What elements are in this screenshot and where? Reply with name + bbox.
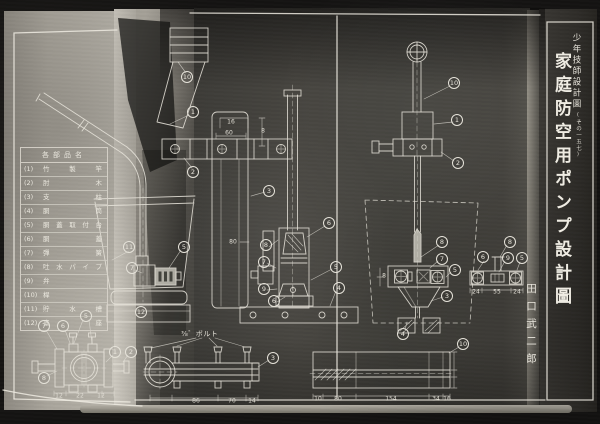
- callout-badge: 6: [57, 320, 69, 332]
- leader-lines: [46, 62, 520, 376]
- callout-badge: 5: [516, 252, 528, 264]
- part-number: (1): [21, 163, 41, 176]
- parts-table-row: (10)桿: [21, 288, 107, 302]
- dimension-label: 12: [55, 393, 63, 400]
- callout-badge: 4: [397, 328, 409, 340]
- parts-table-body: (1)竹製竿(2)肘木(3)支柱(4)胴筒(5)胴蓋取付台(6)胴蓋(7)彈簧(…: [21, 163, 107, 330]
- callout-badge: 8: [38, 372, 50, 384]
- callout-badge: 5: [449, 264, 461, 276]
- callout-badge: 10: [181, 71, 193, 83]
- rod-detail-view: [310, 352, 457, 399]
- dimension-label: 8: [261, 128, 265, 135]
- callout-badge: 6: [268, 295, 280, 307]
- part-name: 貯水槽: [43, 303, 102, 316]
- side-elevation-view: [365, 42, 478, 333]
- callout-badge: 9: [502, 252, 514, 264]
- part-name: 胴筒: [43, 205, 102, 218]
- part-name: 桿: [43, 289, 102, 302]
- part-name: 胴蓋取付台: [43, 219, 102, 232]
- callout-badge: 1: [187, 106, 199, 118]
- callout-badge: 4: [333, 282, 345, 294]
- callout-badge: 2: [187, 166, 199, 178]
- parts-table-header: 各部品名: [21, 148, 107, 163]
- series-number-note: (その一五七): [574, 112, 582, 159]
- part-number: (3): [21, 191, 41, 204]
- dimension-label: 16: [227, 119, 235, 126]
- callout-badge: 6: [323, 217, 335, 229]
- callout-badge: 1: [451, 114, 463, 126]
- parts-table-row: (2)肘木: [21, 176, 107, 190]
- dimension-label: 24: [472, 289, 480, 296]
- page-title: 家庭防空用ポンプ設計圖: [549, 52, 574, 311]
- part-number: (9): [21, 275, 41, 288]
- dimension-label: 70: [228, 398, 236, 405]
- part-number: (4): [21, 205, 41, 218]
- parts-table-row: (11)貯水槽: [21, 302, 107, 316]
- callout-badge: 8: [436, 236, 448, 248]
- parts-table-row: (7)彈簧: [21, 246, 107, 260]
- part-name: 吐水パイプ: [43, 261, 102, 274]
- dimension-label: 22: [76, 393, 84, 400]
- callout-badge: 6: [477, 251, 489, 263]
- callout-badge: 2: [125, 346, 137, 358]
- author-name: 田口武二郎: [524, 283, 539, 371]
- dimension-label: 10: [314, 396, 322, 403]
- callout-badge: 7: [126, 262, 138, 274]
- parts-table-row: (9)弁: [21, 274, 107, 288]
- bolt-size-note: ⅜゛ボルト: [181, 329, 218, 339]
- part-name: 彈簧: [43, 247, 102, 260]
- part-number: (11): [21, 303, 41, 316]
- part-name: 肘木: [43, 177, 102, 190]
- parts-table-row: (8)吐水パイプ: [21, 260, 107, 274]
- dimension-label: 12: [97, 393, 105, 400]
- callout-badge: 3: [267, 352, 279, 364]
- parts-table-row: (1)竹製竿: [21, 163, 107, 176]
- callout-badge: 8: [504, 236, 516, 248]
- dimension-label: 8: [382, 273, 386, 280]
- parts-table-row: (4)胴筒: [21, 204, 107, 218]
- callout-badge: 8: [260, 239, 272, 251]
- dimension-label: 60: [225, 130, 233, 137]
- callout-badge: 5: [178, 241, 190, 253]
- part-name: 竹製竿: [43, 163, 102, 176]
- part-number: (7): [21, 247, 41, 260]
- part-name: 弁: [43, 275, 102, 288]
- callout-badge: 1: [109, 346, 121, 358]
- dimension-label: 55: [493, 289, 501, 296]
- parts-table-row: (3)支柱: [21, 190, 107, 204]
- clamp-plan-detail-view: [32, 333, 129, 396]
- callout-badge: 7: [436, 253, 448, 265]
- part-name: 支柱: [43, 191, 102, 204]
- callout-badge: 3: [441, 290, 453, 302]
- dimension-label: 14: [248, 398, 256, 405]
- callout-badge: 3: [263, 185, 275, 197]
- callout-badge: 5: [330, 261, 342, 273]
- dimension-label: 154: [385, 396, 396, 403]
- callout-badge: 10: [457, 338, 469, 350]
- parts-table: 各部品名 (1)竹製竿(2)肘木(3)支柱(4)胴筒(5)胴蓋取付台(6)胴蓋(…: [20, 147, 108, 331]
- part-name: 臺座: [43, 317, 102, 330]
- handlebar-detail-view: [143, 347, 259, 401]
- dimension-label: 34: [432, 396, 440, 403]
- dimension-label: 86: [192, 398, 200, 405]
- part-name: 胴蓋: [43, 233, 102, 246]
- parts-table-row: (6)胴蓋: [21, 232, 107, 246]
- callout-badge: 2: [452, 157, 464, 169]
- dimension-label: 80: [334, 396, 342, 403]
- part-number: (2): [21, 177, 41, 190]
- callout-badge: 11: [123, 241, 135, 253]
- callout-badge: 12: [135, 306, 147, 318]
- part-number: (8): [21, 261, 41, 274]
- callout-badge: 10: [448, 77, 460, 89]
- dimension-label: 16: [443, 396, 451, 403]
- callout-badge: 5: [80, 310, 92, 322]
- scanned-pump-blueprint-page: 各部品名 (1)竹製竿(2)肘木(3)支柱(4)胴筒(5)胴蓋取付台(6)胴蓋(…: [0, 0, 600, 424]
- callout-badge: 9: [258, 283, 270, 295]
- part-number: (5): [21, 219, 41, 232]
- part-number: (10): [21, 289, 41, 302]
- dimension-label: 24: [513, 289, 521, 296]
- callout-badge: 7: [38, 320, 50, 332]
- part-number: (6): [21, 233, 41, 246]
- dimension-label: 80: [229, 239, 237, 246]
- parts-table-row: (5)胴蓋取付台: [21, 218, 107, 232]
- callout-badge: 7: [258, 256, 270, 268]
